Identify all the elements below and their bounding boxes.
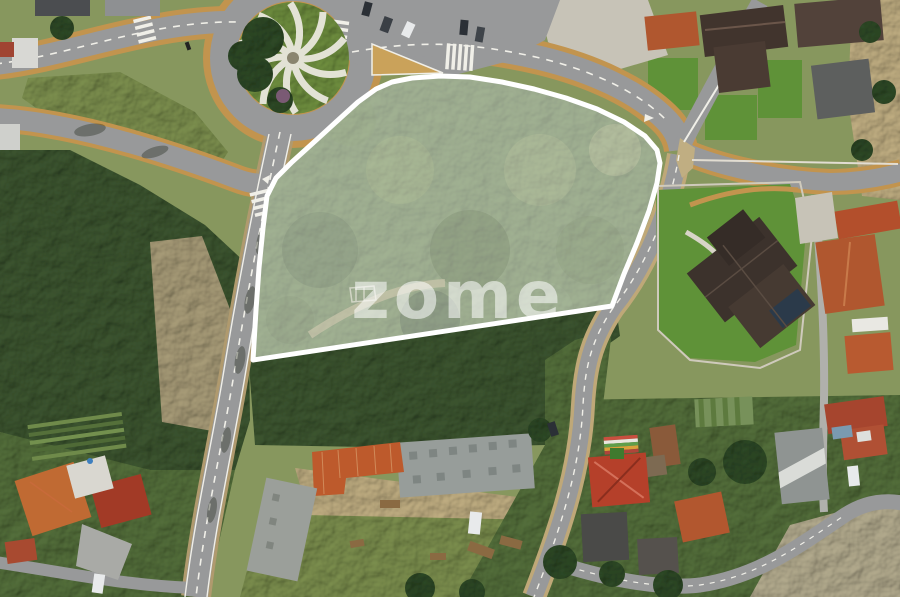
car-parked-1 xyxy=(459,20,468,36)
island-center xyxy=(287,52,299,64)
charcoal-roof-1 xyxy=(581,512,629,562)
outbuilding-sw xyxy=(5,538,38,564)
red-roof-nw xyxy=(0,42,14,57)
red-hip-house xyxy=(588,452,650,507)
garden-plots-village xyxy=(694,396,753,427)
tree-ne-3 xyxy=(851,139,873,161)
white-van-yard xyxy=(468,511,482,534)
pool-dot xyxy=(87,458,93,464)
white-van-village xyxy=(847,465,860,486)
pale-yard-east xyxy=(795,192,838,244)
white-panel-roof xyxy=(852,317,889,332)
orange-hip-east xyxy=(844,332,893,374)
gray-gable-house xyxy=(774,428,829,505)
aerial-photo: zome xyxy=(0,0,900,597)
white-building-west xyxy=(0,124,20,150)
terracotta-house-ne xyxy=(644,11,699,50)
tree-ne-2 xyxy=(872,80,896,104)
white-building-nw xyxy=(12,38,38,68)
aerial-photo-canvas: zome xyxy=(0,0,900,597)
roof-dark-nw xyxy=(35,0,90,16)
pavement-nw xyxy=(105,0,160,16)
mini-lawn xyxy=(610,448,624,459)
gray-roof-house-ne xyxy=(811,59,875,120)
tree-ne-1 xyxy=(859,21,881,43)
tree-nw xyxy=(50,16,74,40)
purple-tree xyxy=(276,89,290,103)
watermark-text: zome xyxy=(351,257,564,334)
dark-roof-wing-ne xyxy=(713,41,770,93)
charcoal-roof-2 xyxy=(637,537,679,575)
